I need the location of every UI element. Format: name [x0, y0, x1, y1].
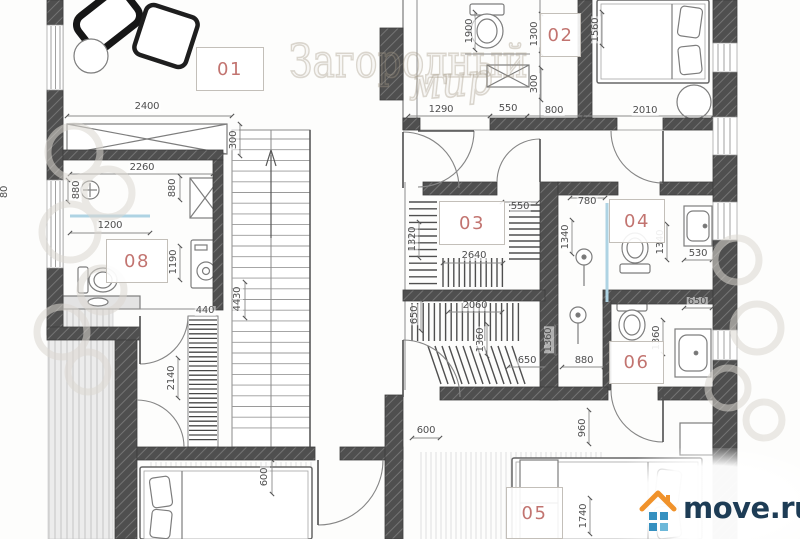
room-number: 05: [522, 503, 548, 524]
dimension-label: 2140: [167, 365, 177, 392]
round-table: [74, 39, 108, 73]
bed: [597, 0, 709, 83]
room-number-box: 06: [609, 341, 664, 384]
logo-text: move.ru: [683, 491, 800, 525]
pouf: [677, 85, 711, 119]
room-number: 06: [624, 352, 650, 373]
dimension-label: 440: [195, 306, 216, 316]
dimension-label: 2060: [462, 301, 489, 311]
dimension-label: 2260: [129, 163, 156, 173]
sink: [675, 329, 711, 377]
dimension-label: 530: [688, 249, 709, 259]
room-number: 01: [217, 59, 243, 80]
room-number-box: 03: [439, 201, 505, 245]
dimension-label: 2010: [632, 106, 659, 116]
dimension-label: 1740: [579, 503, 589, 530]
shower-head: [576, 249, 592, 286]
dimension-label: 600: [260, 467, 270, 488]
dimension-label: 1360: [476, 327, 486, 354]
floorplan-image: Загородный мир 2400300226088088080120011…: [0, 0, 800, 539]
dimension-label: 300: [229, 130, 239, 151]
dimension-label: 780: [577, 197, 598, 207]
move-ru-logo: move.ru: [638, 484, 800, 532]
closet: [487, 65, 529, 87]
dimension-label: 650: [687, 297, 708, 307]
dimension-label: 600: [416, 426, 437, 436]
room-number: 04: [624, 211, 650, 232]
bed: [140, 467, 312, 539]
dimension-label: 1320: [408, 226, 418, 253]
dimension-label: 300: [530, 74, 540, 95]
dimension-label: 2640: [461, 251, 488, 261]
dimension-label: 960: [578, 418, 588, 439]
room-number: 08: [124, 251, 150, 272]
room-number-box: 08: [106, 239, 168, 283]
room-number-box: 01: [196, 47, 264, 91]
dimension-label: 1200: [97, 221, 124, 231]
dimension-label: 1190: [169, 249, 179, 276]
dimension-label: 4430: [233, 286, 243, 313]
room-number: 02: [548, 25, 574, 46]
dimension-label: 550: [510, 202, 531, 212]
toilet: [617, 303, 647, 340]
dimension-label: 800: [544, 106, 565, 116]
dimension-label: 2400: [134, 102, 161, 112]
dimension-label: 1900: [465, 18, 475, 45]
room-number: 03: [459, 213, 485, 234]
room-number-box: 04: [609, 199, 665, 243]
dimension-label: 1360: [544, 327, 554, 354]
house-icon: [638, 484, 678, 532]
dimension-label: 1560: [591, 17, 601, 44]
dimension-label: 1290: [428, 105, 455, 115]
dimension-label: 650: [410, 305, 420, 326]
dimension-label: 1300: [530, 21, 540, 48]
dimension-label: 1340: [561, 224, 571, 251]
dimension-label: 650: [517, 356, 538, 366]
dimension-label: 880: [574, 356, 595, 366]
dimension-label: 80: [0, 185, 10, 199]
room-number-box: 05: [506, 487, 563, 539]
dimension-label: 880: [72, 180, 82, 201]
shower-head: [570, 307, 586, 344]
sink: [684, 206, 712, 246]
dimension-label: 880: [168, 178, 178, 199]
room-number-box: 02: [540, 13, 581, 57]
dimension-label: 550: [498, 104, 519, 114]
